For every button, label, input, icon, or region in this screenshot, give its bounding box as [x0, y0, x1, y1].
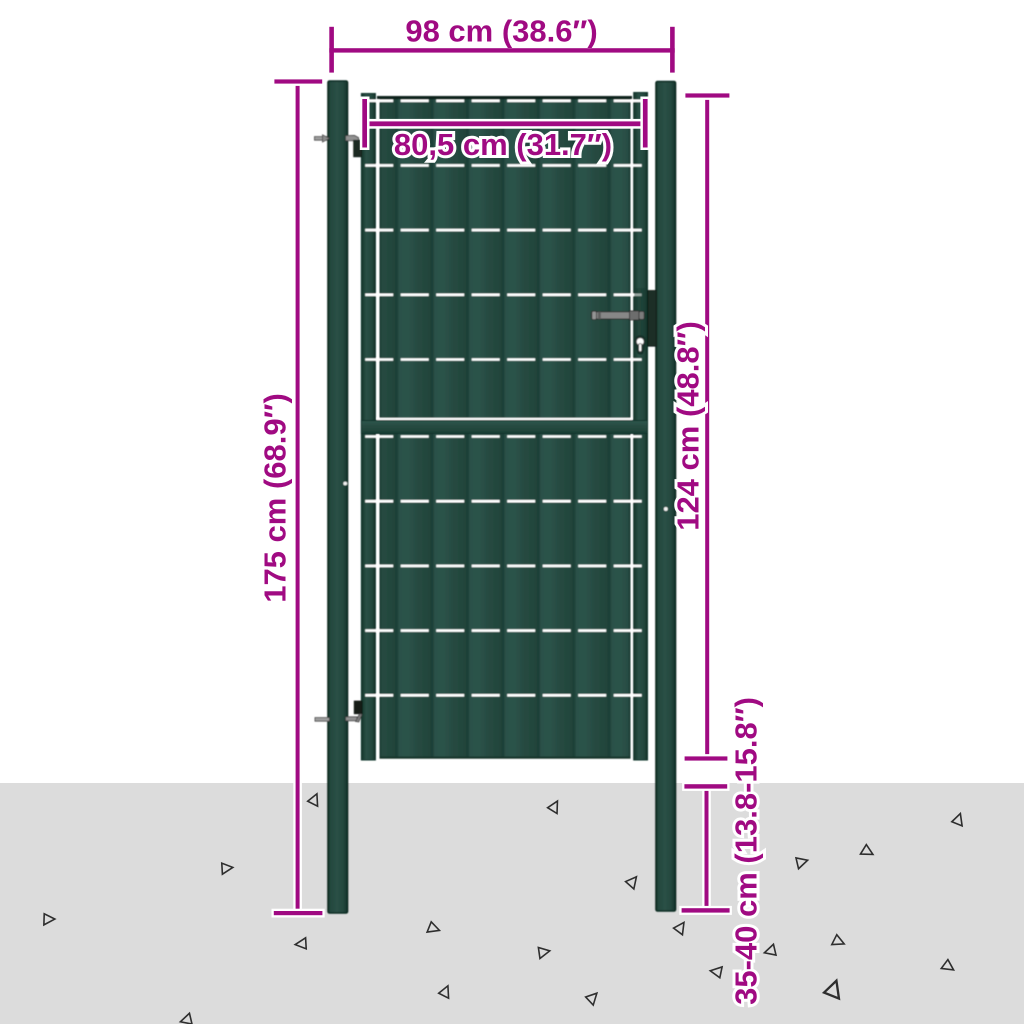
- svg-text:175 cm (68.9″): 175 cm (68.9″): [258, 393, 293, 603]
- svg-text:80,5 cm (31.7″): 80,5 cm (31.7″): [394, 127, 612, 162]
- svg-text:35-40 cm (13.8-15.8″): 35-40 cm (13.8-15.8″): [729, 697, 764, 1005]
- svg-text:124 cm (48.8″): 124 cm (48.8″): [671, 321, 706, 531]
- svg-text:98 cm (38.6″): 98 cm (38.6″): [405, 14, 597, 49]
